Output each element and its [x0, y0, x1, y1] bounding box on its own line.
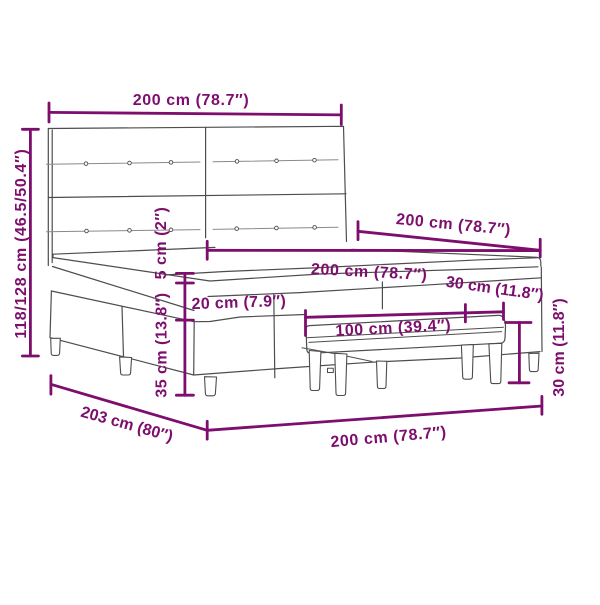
svg-text:30 cm (11.8″): 30 cm (11.8″) — [551, 298, 568, 396]
svg-text:118/128 cm (46.5/50.4″): 118/128 cm (46.5/50.4″) — [13, 148, 30, 338]
svg-text:5 cm (2″): 5 cm (2″) — [153, 207, 170, 280]
svg-text:200 cm (78.7″): 200 cm (78.7″) — [395, 211, 511, 239]
svg-text:200 cm (78.7″): 200 cm (78.7″) — [133, 92, 250, 109]
svg-text:203 cm (80″): 203 cm (80″) — [79, 404, 175, 446]
svg-text:200 cm (78.7″): 200 cm (78.7″) — [311, 261, 428, 284]
svg-text:35 cm (13.8″): 35 cm (13.8″) — [154, 292, 171, 397]
svg-text:200 cm (78.7″): 200 cm (78.7″) — [330, 424, 448, 451]
svg-text:20 cm (7.9″): 20 cm (7.9″) — [191, 293, 286, 313]
